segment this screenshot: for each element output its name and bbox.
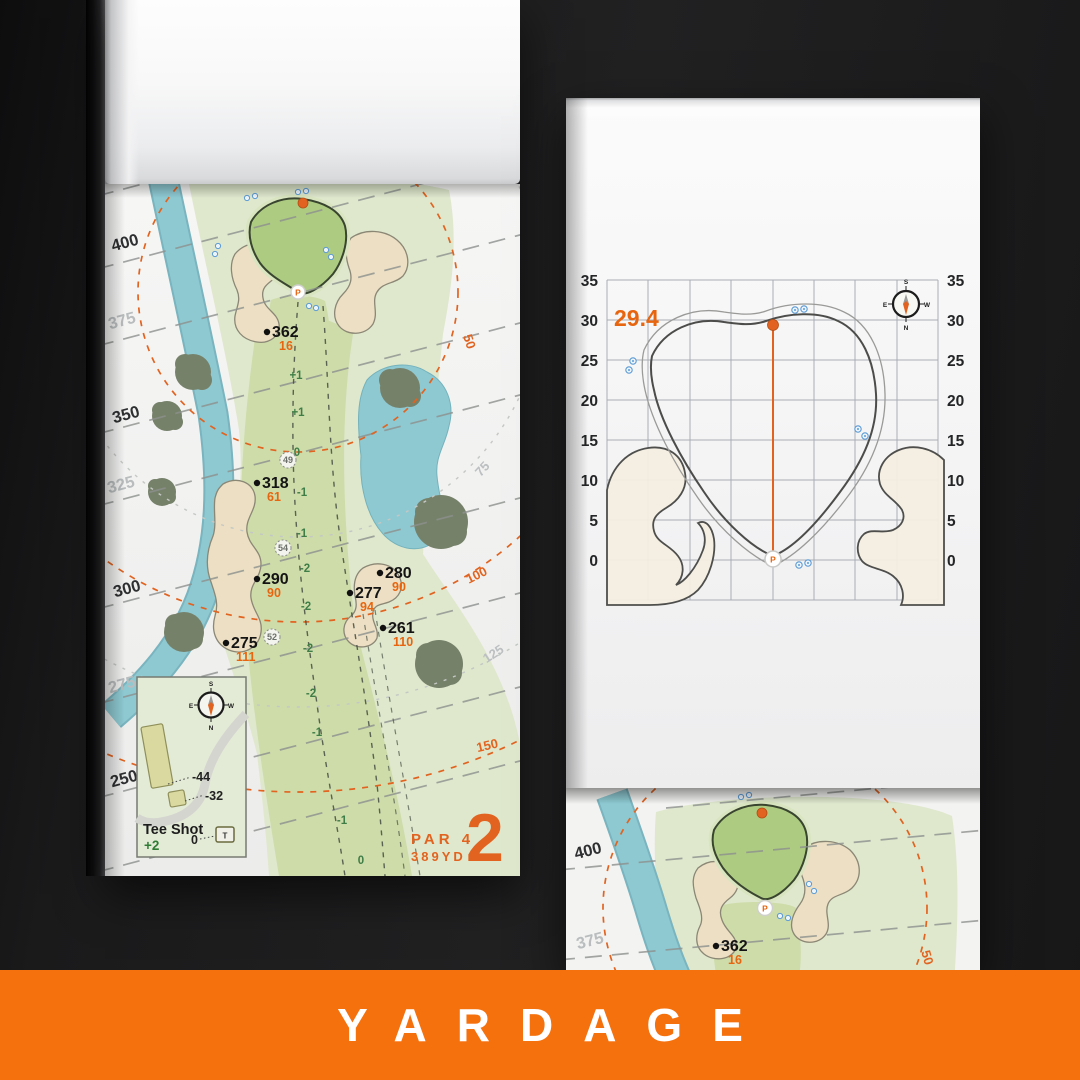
svg-text:P: P xyxy=(295,288,301,298)
banner-title: YARDAGE xyxy=(307,998,773,1052)
svg-text:0: 0 xyxy=(358,855,364,867)
svg-text:+1: +1 xyxy=(289,370,303,382)
svg-text:0: 0 xyxy=(589,553,598,570)
svg-text:16: 16 xyxy=(279,339,293,353)
hole-number: 2 xyxy=(466,800,504,876)
svg-text:-1: -1 xyxy=(297,487,308,499)
svg-text:15: 15 xyxy=(581,433,599,450)
tee-zero-label: 0 xyxy=(191,833,198,847)
depth-value: 29.4 xyxy=(614,305,659,331)
svg-text:15: 15 xyxy=(947,433,965,450)
svg-text:-2: -2 xyxy=(303,643,313,655)
axis-ticks-left: 35 30 25 20 15 10 5 0 xyxy=(581,273,599,570)
svg-text:N: N xyxy=(209,725,214,732)
green-grid-map: 35 30 25 20 15 10 5 0 35 30 25 20 15 10 … xyxy=(566,98,980,788)
svg-text:35: 35 xyxy=(947,273,965,290)
tee-offset-short: -32 xyxy=(205,789,223,803)
yardage-banner: YARDAGE xyxy=(0,970,1080,1080)
waypoint-value: 52 xyxy=(267,632,277,642)
svg-text:5: 5 xyxy=(589,513,598,530)
svg-text:-2: -2 xyxy=(301,601,311,613)
svg-text:-1: -1 xyxy=(337,815,348,827)
svg-text:25: 25 xyxy=(581,353,599,370)
svg-text:P: P xyxy=(762,904,768,914)
flipped-blank-page xyxy=(105,0,520,184)
svg-text:S: S xyxy=(209,681,214,688)
green-target-dot xyxy=(298,198,308,208)
svg-text:10: 10 xyxy=(947,473,964,490)
svg-text:90: 90 xyxy=(267,586,281,600)
svg-text:N: N xyxy=(904,325,909,332)
compass-icon: S N W E xyxy=(883,279,931,332)
tee-shot-score: +2 xyxy=(144,838,159,853)
green-fringe-outline xyxy=(642,304,885,566)
booklet-spine-edge xyxy=(86,0,106,876)
svg-text:20: 20 xyxy=(581,393,598,410)
pin-icon: P xyxy=(291,285,305,299)
svg-text:16: 16 xyxy=(728,953,742,967)
svg-text:90: 90 xyxy=(392,580,406,594)
svg-text:+1: +1 xyxy=(291,407,305,419)
svg-text:30: 30 xyxy=(581,313,598,330)
svg-text:110: 110 xyxy=(393,635,413,649)
svg-text:P: P xyxy=(770,555,776,565)
next-hole-map: P 400 375 362 16 50 xyxy=(566,788,980,970)
tee-offset-long: -44 xyxy=(192,770,210,784)
svg-text:T: T xyxy=(223,832,228,841)
svg-text:E: E xyxy=(883,302,888,309)
svg-text:-2: -2 xyxy=(306,688,316,700)
yardage-book-promo: 49 54 52 +1 +1 0 -1 -1 -2 -2 -2 -2 xyxy=(0,0,1080,1080)
svg-text:W: W xyxy=(228,703,235,710)
svg-text:5: 5 xyxy=(947,513,956,530)
svg-text:E: E xyxy=(189,703,194,710)
svg-text:-1: -1 xyxy=(297,528,308,540)
svg-text:-2: -2 xyxy=(300,563,310,575)
tee-pad-short xyxy=(168,790,186,808)
green-bunkers xyxy=(607,447,944,605)
tee-marker-icon: T xyxy=(216,827,234,842)
svg-text:35: 35 xyxy=(581,273,599,290)
svg-text:30: 30 xyxy=(947,313,964,330)
green-detail-page: 35 30 25 20 15 10 5 0 35 30 25 20 15 10 … xyxy=(566,98,980,788)
waypoint-value: 49 xyxy=(283,455,293,465)
yardage-label: 389YD xyxy=(411,849,466,864)
next-hole-page-fragment: P 400 375 362 16 50 xyxy=(566,788,980,970)
waypoint-value: 54 xyxy=(278,543,288,553)
svg-text:10: 10 xyxy=(581,473,598,490)
sprinkler-dots xyxy=(628,308,866,566)
hole-map-page: 49 54 52 +1 +1 0 -1 -1 -2 -2 -2 -2 xyxy=(105,184,520,876)
depth-dot xyxy=(768,320,779,331)
svg-text:94: 94 xyxy=(360,600,374,614)
pin-icon: P xyxy=(758,901,773,916)
axis-ticks-right: 35 30 25 20 15 10 5 0 xyxy=(947,273,965,570)
svg-text:61: 61 xyxy=(267,490,281,504)
svg-text:-1: -1 xyxy=(312,727,323,739)
pin-icon: P xyxy=(765,551,781,567)
hole-map: 49 54 52 +1 +1 0 -1 -1 -2 -2 -2 -2 xyxy=(105,184,520,876)
svg-text:111: 111 xyxy=(236,650,256,664)
svg-text:25: 25 xyxy=(947,353,965,370)
svg-text:20: 20 xyxy=(947,393,964,410)
booklet-left: 49 54 52 +1 +1 0 -1 -1 -2 -2 -2 -2 xyxy=(105,0,520,876)
par-label: PAR 4 xyxy=(411,831,474,848)
green-target-dot xyxy=(757,808,767,818)
booklet-right: 35 30 25 20 15 10 5 0 35 30 25 20 15 10 … xyxy=(566,98,980,970)
svg-text:S: S xyxy=(904,279,909,286)
svg-text:0: 0 xyxy=(947,553,956,570)
tee-shot-inset: -44 -32 Tee Shot +2 0 T xyxy=(137,677,246,857)
svg-text:W: W xyxy=(924,302,931,309)
svg-text:0: 0 xyxy=(294,447,300,459)
